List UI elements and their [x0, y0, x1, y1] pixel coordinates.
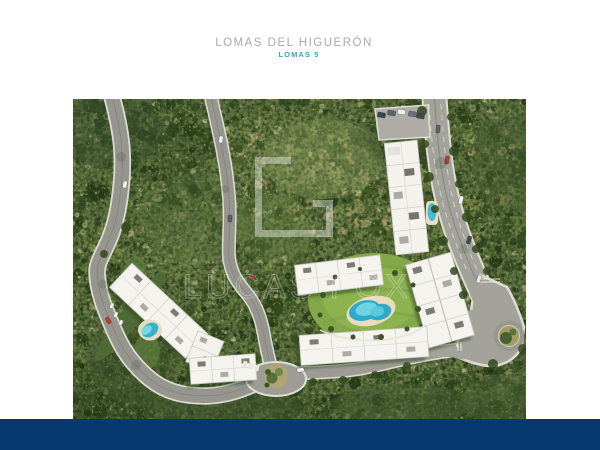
- svg-text:LUCAS FOX: LUCAS FOX: [183, 268, 412, 306]
